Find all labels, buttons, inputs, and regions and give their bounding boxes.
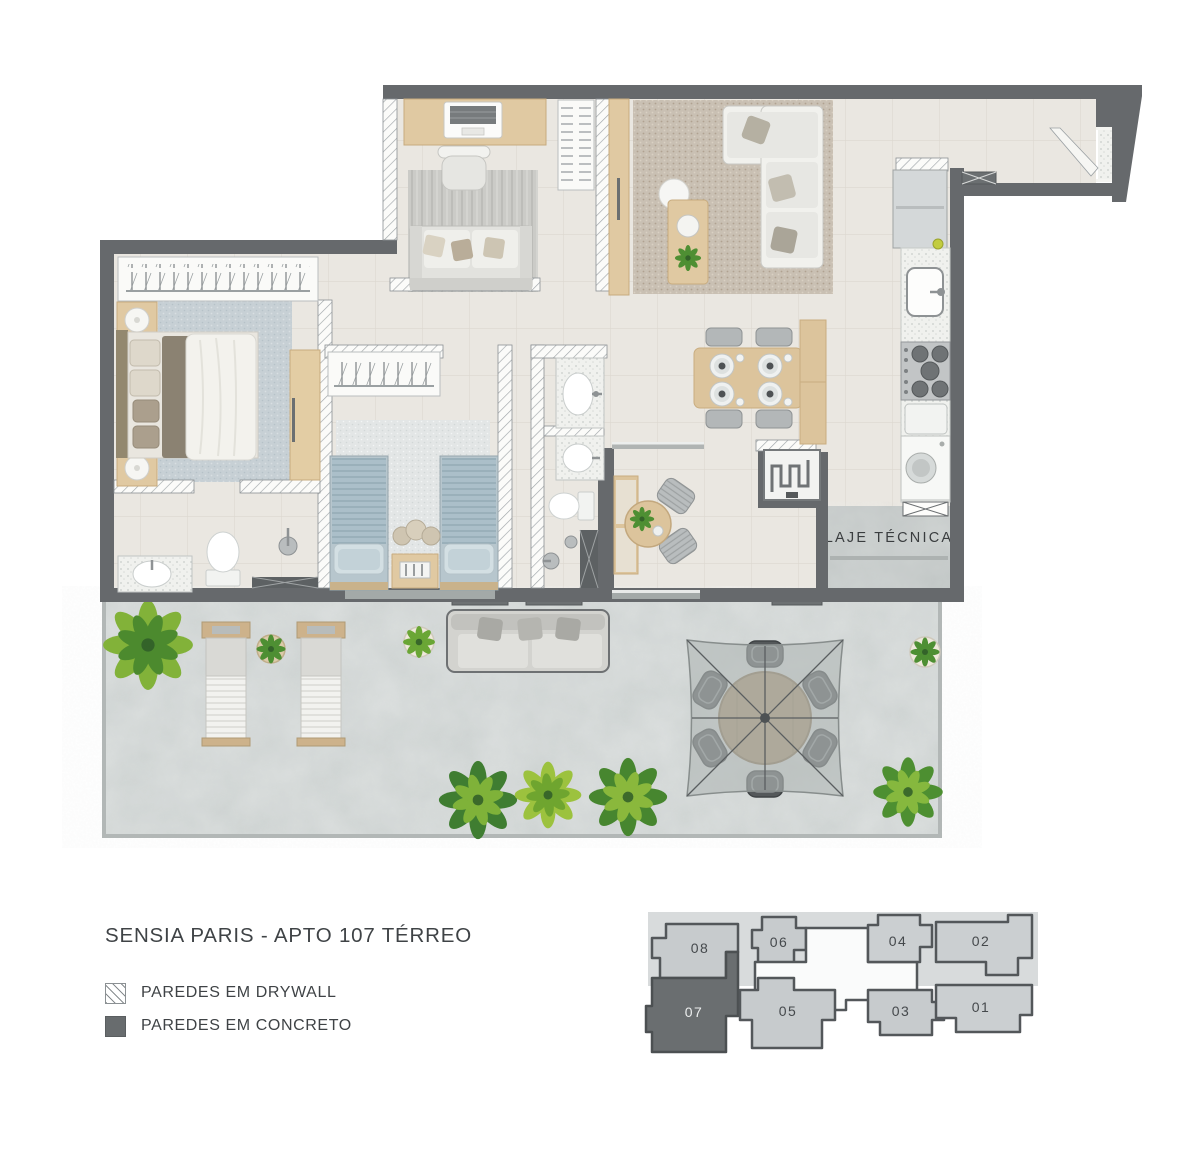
key-plan: 08 06 04 02 07 05 03 01 bbox=[646, 912, 1038, 1052]
legend-drywall-label: PAREDES EM DRYWALL bbox=[141, 984, 336, 1002]
master-closet bbox=[118, 257, 318, 301]
fridge bbox=[893, 170, 947, 248]
side-table-3 bbox=[910, 637, 940, 667]
closet-2 bbox=[328, 352, 440, 396]
keyplan-label-04: 04 bbox=[889, 933, 908, 949]
dining bbox=[694, 320, 826, 444]
keyplan-label-06: 06 bbox=[770, 934, 789, 950]
page-title: SENSIA PARIS - APTO 107 TÉRREO bbox=[105, 924, 472, 948]
shaft-box bbox=[962, 172, 996, 184]
dining-chair bbox=[706, 410, 742, 428]
drywall-swatch-icon bbox=[105, 983, 126, 1004]
sun-lounger-2 bbox=[297, 622, 345, 746]
keyplan-label-07: 07 bbox=[685, 1004, 704, 1020]
plant-icon bbox=[257, 635, 286, 664]
radio bbox=[400, 562, 430, 578]
single-bed-right bbox=[440, 456, 498, 590]
concrete-swatch-icon bbox=[105, 1016, 126, 1037]
small-sink bbox=[905, 404, 947, 434]
sink-1 bbox=[563, 373, 593, 415]
kitchen-sink bbox=[907, 268, 945, 316]
side-table-2 bbox=[403, 626, 435, 658]
kitchen bbox=[893, 170, 950, 516]
vent-box bbox=[903, 502, 948, 516]
washing-machine bbox=[901, 436, 950, 500]
floor-plan-svg: LAJE TÉCNICA bbox=[0, 0, 1200, 1152]
keyplan-label-08: 08 bbox=[691, 940, 710, 956]
wardrobe-office bbox=[609, 99, 629, 295]
outdoor-dining-set bbox=[687, 640, 843, 797]
plant-icon bbox=[911, 638, 940, 667]
outdoor-sofa bbox=[447, 610, 609, 672]
plant-icon bbox=[403, 626, 435, 658]
plant-icon bbox=[675, 245, 701, 271]
side-table-1 bbox=[257, 635, 286, 664]
office-sofa bbox=[410, 226, 532, 290]
neighbor-wall bbox=[1112, 85, 1142, 202]
keyplan-label-02: 02 bbox=[972, 933, 991, 949]
toilet bbox=[206, 532, 240, 586]
stove bbox=[901, 342, 950, 400]
legend-concrete-label: PAREDES EM CONCRETO bbox=[141, 1017, 352, 1035]
keyplan-label-03: 03 bbox=[892, 1003, 911, 1019]
single-bed-left bbox=[330, 456, 388, 590]
keyplan-label-05: 05 bbox=[779, 1003, 798, 1019]
dining-chair bbox=[756, 328, 792, 346]
terrace bbox=[103, 592, 943, 839]
corridor-strip bbox=[1098, 130, 1112, 182]
double-bed bbox=[116, 330, 258, 460]
floorplan-page: LAJE TÉCNICA bbox=[0, 0, 1200, 1152]
desk-chair bbox=[438, 146, 490, 190]
nightstand-2 bbox=[392, 554, 438, 588]
legend-row-drywall: PAREDES EM DRYWALL bbox=[105, 982, 352, 1004]
sideboard bbox=[800, 320, 826, 444]
laje-tecnica: LAJE TÉCNICA bbox=[825, 506, 953, 588]
toilet-2 bbox=[549, 492, 594, 520]
laptop bbox=[444, 102, 502, 138]
sink-2 bbox=[563, 444, 593, 472]
headboard bbox=[116, 330, 128, 458]
shelf-unit bbox=[558, 100, 594, 190]
plant-icon bbox=[630, 507, 654, 531]
keyplan-label-01: 01 bbox=[972, 999, 991, 1015]
laje-tecnica-label: LAJE TÉCNICA bbox=[825, 529, 953, 546]
dining-chair bbox=[756, 410, 792, 428]
water-heater bbox=[764, 450, 820, 500]
dining-chair bbox=[706, 328, 742, 346]
legend-row-concrete: PAREDES EM CONCRETO bbox=[105, 1015, 352, 1037]
wardrobe-master bbox=[290, 350, 320, 480]
fruit-bowl bbox=[933, 239, 943, 249]
legend: PAREDES EM DRYWALL PAREDES EM CONCRETO bbox=[105, 982, 352, 1048]
sun-lounger-1 bbox=[202, 622, 250, 746]
